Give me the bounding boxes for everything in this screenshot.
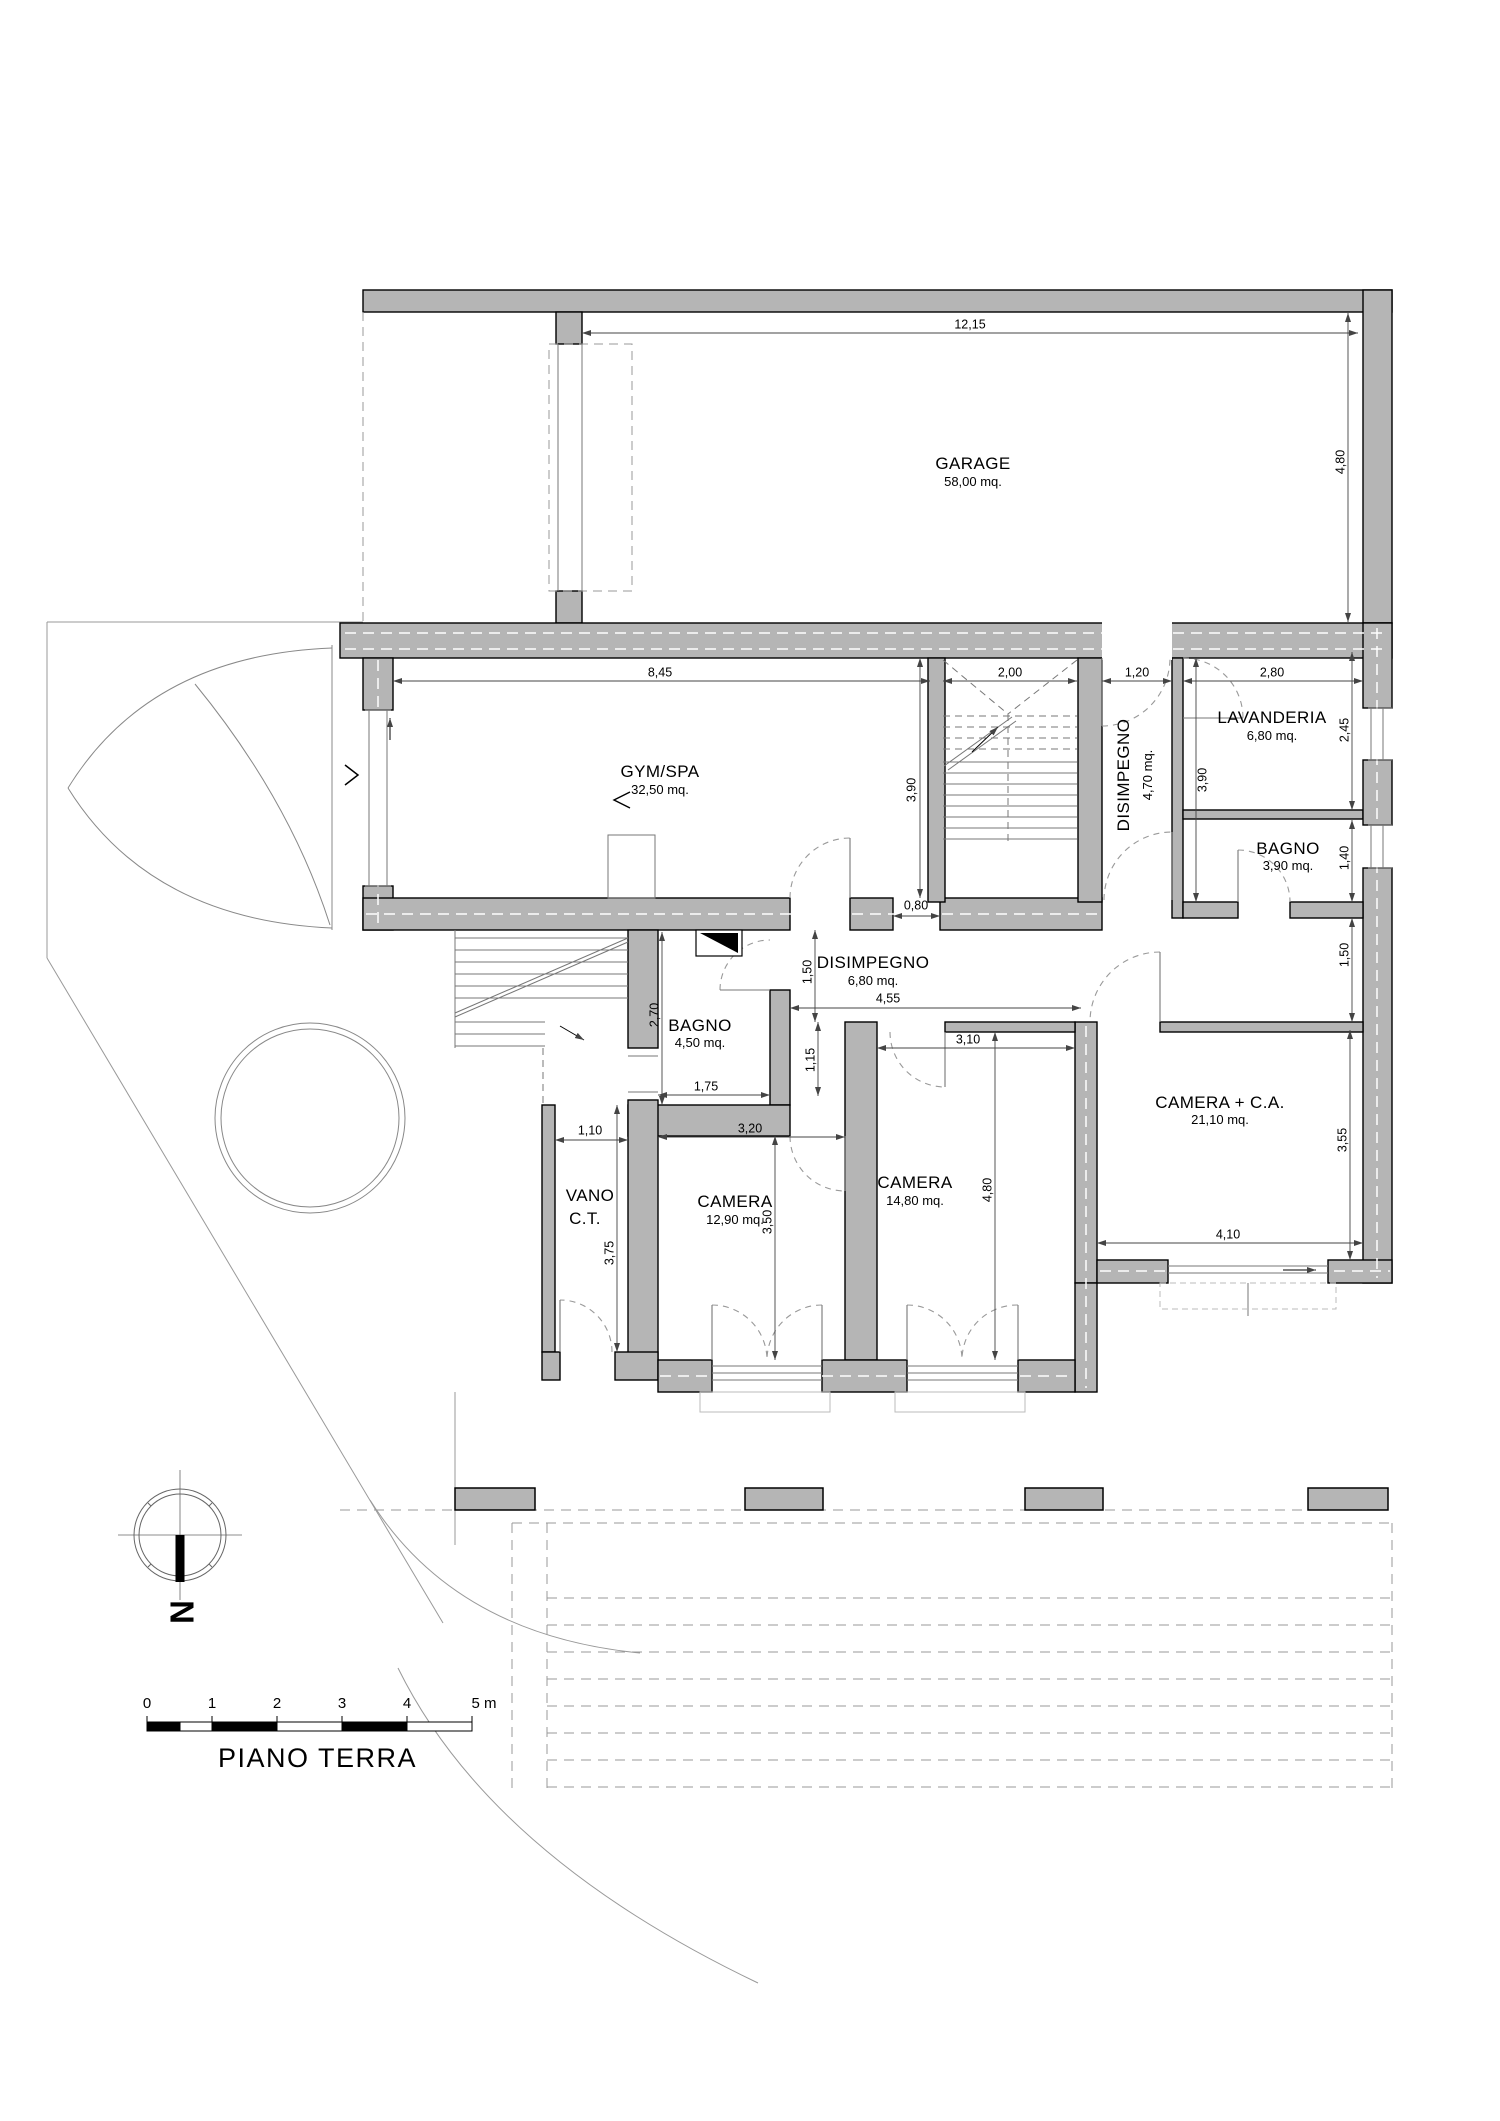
floor-plan-page: GARAGE 58,00 mq. GYM/SPA 32,50 mq. LAVAN… [0, 0, 1500, 2121]
dim-hall-width: 4,55 [876, 992, 900, 1005]
dim-bagno-center-width: 1,75 [694, 1080, 718, 1093]
dim-bagno-center-height: 2,70 [648, 1003, 661, 1027]
room-area-lavanderia: 6,80 mq. [1247, 729, 1298, 743]
room-label-lavanderia: LAVANDERIA [1217, 709, 1326, 727]
room-label-vano-ct-line1: VANO [566, 1187, 615, 1205]
dimension-lines [393, 313, 1363, 1360]
windows [365, 708, 1392, 1380]
scale-label-2: 2 [273, 1696, 281, 1712]
page-title: PIANO TERRA [218, 1744, 417, 1772]
room-area-camera-1480: 14,80 mq. [886, 1194, 944, 1208]
scale-label-4: 4 [403, 1696, 411, 1712]
dim-garage-width: 12,15 [954, 318, 985, 331]
hall-niche-symbol [696, 930, 742, 956]
dim-hall-arm-left: 1,50 [801, 960, 814, 984]
dim-gym-height: 3,90 [905, 778, 918, 802]
dim-hall-arm-right: 1,50 [1338, 943, 1351, 967]
room-label-camera-1480: CAMERA [877, 1174, 952, 1192]
room-label-garage: GARAGE [935, 455, 1010, 473]
dim-gym-width: 8,45 [648, 666, 672, 679]
interior-staircase [943, 660, 1077, 842]
room-area-bagno-center: 4,50 mq. [675, 1036, 726, 1050]
dim-lavanderia-width: 2,80 [1260, 666, 1284, 679]
room-area-gym-spa: 32,50 mq. [631, 783, 689, 797]
dim-camera-ca-height: 3,55 [1336, 1128, 1349, 1152]
room-area-camera-1290: 12,90 mq. [706, 1213, 764, 1227]
floor-plan-drawing [0, 0, 1500, 2121]
terrace-pillars [455, 1488, 1388, 1510]
room-label-disimpegno-hall: DISIMPEGNO [817, 954, 930, 972]
room-area-garage: 58,00 mq. [944, 475, 1002, 489]
compass-icon [118, 1470, 242, 1600]
dim-vano-ct-width: 1,10 [578, 1124, 602, 1137]
room-area-disimpegno-hall: 6,80 mq. [848, 974, 899, 988]
gate-swing-arcs [68, 645, 358, 930]
scale-label-3: 3 [338, 1696, 346, 1712]
gym-fixtures [390, 718, 655, 898]
garage-door [363, 312, 632, 623]
dim-corridor-width: 1,20 [1125, 666, 1149, 679]
dim-corridor-height: 3,90 [1196, 768, 1209, 792]
scale-label-0: 0 [143, 1696, 151, 1712]
dim-lavanderia-height: 2,45 [1338, 718, 1351, 742]
dim-camera1480-width: 3,10 [956, 1033, 980, 1046]
room-label-camera-1290: CAMERA [697, 1193, 772, 1211]
scale-label-1: 1 [208, 1696, 216, 1712]
room-label-disimpegno-corridor: DISIMPEGNO [1115, 719, 1133, 832]
dim-hall-opening: 0,80 [904, 899, 928, 912]
dim-bagno-east-height: 1,40 [1338, 846, 1351, 870]
dim-camera1290-width: 3,20 [738, 1122, 762, 1135]
dim-stair-width: 2,00 [998, 666, 1022, 679]
dim-passage-height: 1,15 [804, 1048, 817, 1072]
room-label-vano-ct-line2: C.T. [569, 1210, 601, 1228]
pergola-dashed-lines [340, 1510, 1392, 1790]
room-area-camera-ca: 21,10 mq. [1191, 1113, 1249, 1127]
compass-north-label: N [164, 1600, 199, 1624]
hall-west-opening [628, 1050, 658, 1098]
room-label-bagno-center: BAGNO [668, 1017, 731, 1035]
room-label-bagno-east: BAGNO [1256, 840, 1319, 858]
room-area-bagno-east: 3,90 mq. [1263, 859, 1314, 873]
room-area-disimpegno-corridor: 4,70 mq. [1141, 750, 1155, 801]
dim-vano-ct-height: 3,75 [603, 1241, 616, 1265]
scale-bar [147, 1716, 472, 1731]
tree-symbol [215, 1023, 405, 1213]
corridor-top-opening [1102, 621, 1172, 660]
dim-camera-ca-width: 4,10 [1216, 1228, 1240, 1241]
dim-camera1480-height: 4,80 [981, 1178, 994, 1202]
scale-label-5m: 5 m [471, 1696, 496, 1712]
room-label-gym-spa: GYM/SPA [620, 763, 699, 781]
dim-camera1290-height: 3,50 [761, 1210, 774, 1234]
room-label-camera-ca: CAMERA + C.A. [1155, 1094, 1284, 1112]
dim-garage-height: 4,80 [1334, 450, 1347, 474]
exterior-staircase [455, 930, 628, 1105]
